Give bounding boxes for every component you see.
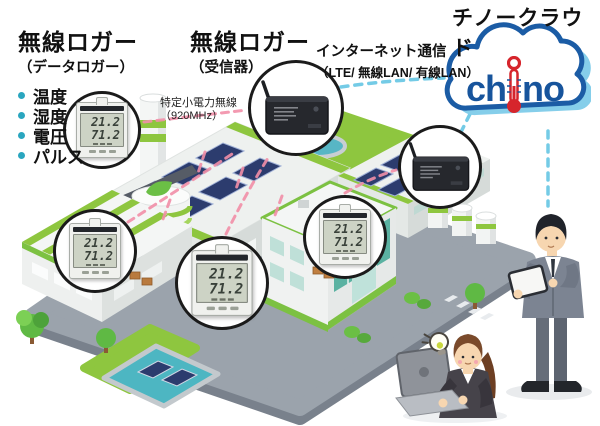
- radio-label-line1: 特定小電力無線: [160, 97, 237, 110]
- wireless-data-logger-device: 21.2 71.2: [69, 223, 121, 279]
- bullet-dot-icon: [18, 152, 25, 159]
- mount-tab: [89, 218, 101, 226]
- cloud-title: チノークラウド: [452, 2, 600, 62]
- device-brand-strip: [73, 227, 117, 232]
- wireless-receiver-callout-2: [398, 125, 482, 209]
- receiver-label-block: 無線ロガー （受信器）: [190, 30, 310, 77]
- wireless-data-logger-device: 21.2 71.2: [191, 250, 252, 316]
- person-standing-with-tablet: [506, 214, 592, 400]
- lcd-screen: 21.2 71.2: [323, 220, 367, 254]
- device-brand-strip: [323, 213, 367, 218]
- wireless-logger-callout-2: 21.2 71.2: [53, 209, 137, 293]
- device-brand-strip: [196, 255, 248, 261]
- humidity-value: 71.2: [334, 236, 363, 249]
- wireless-logger-callout-3: 21.2 71.2: [175, 236, 269, 330]
- radio-label-block: 特定小電力無線 （920MHz）: [160, 97, 237, 123]
- wireless-data-logger-device: 21.2 71.2: [319, 209, 371, 265]
- lcd-screen: 21.2 71.2: [73, 234, 117, 268]
- wireless-logger-callout-4: 21.2 71.2: [303, 195, 387, 279]
- humidity-value: 71.2: [84, 250, 113, 263]
- data-logger-subtitle: （データロガー）: [18, 56, 138, 77]
- measurement-item-pulse: パルス: [18, 145, 138, 165]
- bullet-dot-icon: [18, 132, 25, 139]
- mount-tab: [339, 204, 351, 212]
- lcd-indicators: [86, 264, 105, 266]
- thermometer-icon: [507, 56, 521, 114]
- temperature-value: 21.2: [209, 266, 243, 281]
- wireless-receiver-device: [406, 141, 474, 193]
- receiver-subtitle: （受信器）: [190, 56, 310, 77]
- device-buttons: [73, 271, 117, 274]
- bullet-dot-icon: [18, 92, 25, 99]
- measurement-list: 温度 湿度 電圧 パルス: [18, 85, 138, 165]
- radio-label-line2: （920MHz）: [160, 110, 237, 123]
- receiver-title: 無線ロガー: [190, 30, 310, 54]
- wordmark-suffix: no: [522, 68, 564, 110]
- mount-tab: [215, 244, 229, 253]
- internet-label-line2: （LTE/ 無線LAN/ 有線LAN）: [316, 62, 479, 81]
- humidity-value: 71.2: [209, 282, 243, 297]
- device-buttons: [323, 257, 367, 260]
- device-buttons: [196, 307, 248, 311]
- lcd-indicators: [211, 298, 233, 300]
- bullet-dot-icon: [18, 112, 25, 119]
- data-logger-label-block: 無線ロガー （データロガー） 温度 湿度 電圧 パルス: [18, 30, 138, 165]
- diagram-canvas: eco: [0, 0, 600, 426]
- data-logger-title: 無線ロガー: [18, 30, 138, 54]
- lcd-indicators: [336, 250, 355, 252]
- wireless-receiver-device: [258, 79, 334, 137]
- lcd-screen: 21.2 71.2: [196, 263, 248, 303]
